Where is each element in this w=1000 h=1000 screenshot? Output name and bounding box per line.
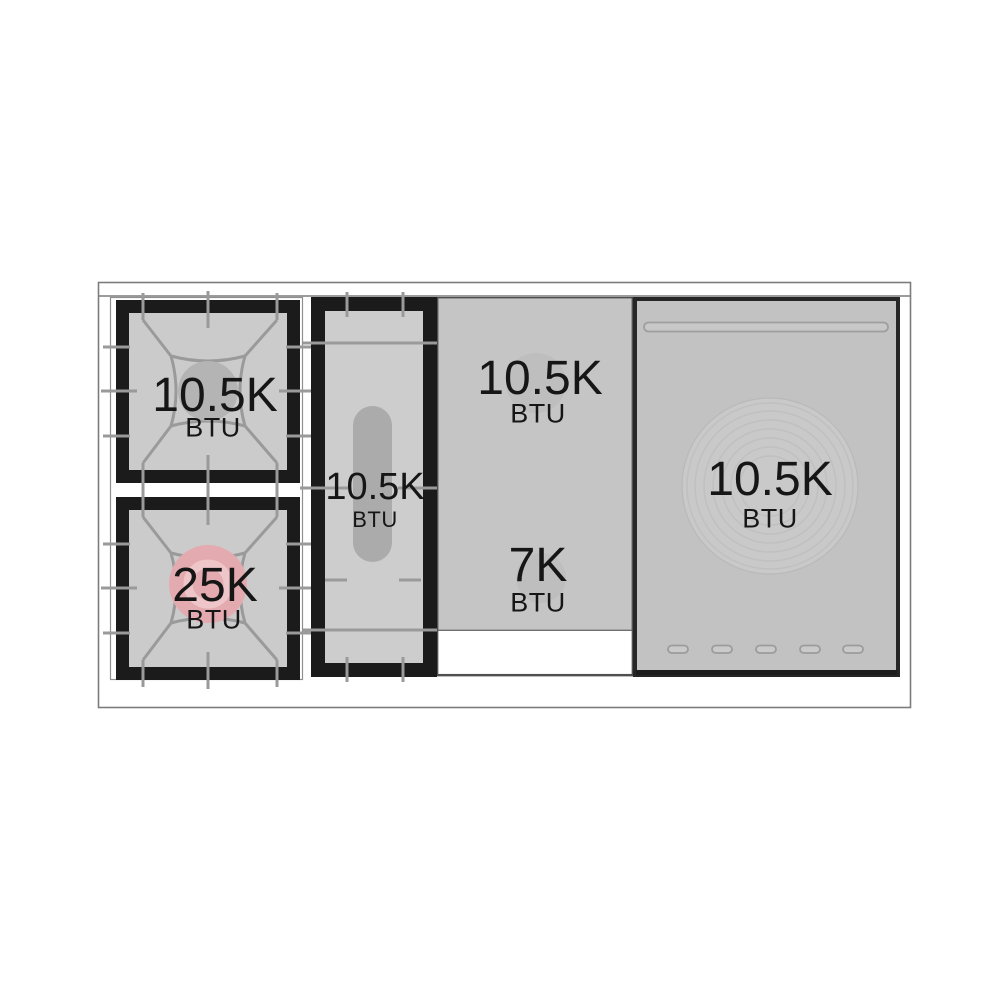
burner-bottom-left-rating: 25K [172,562,257,610]
cooktop-diagram-graphics [0,0,1000,1000]
center-top-burner-unit: BTU [510,401,566,428]
center-panel-front-strip [438,630,631,674]
right-element-unit: BTU [742,506,798,533]
center-bottom-burner-unit: BTU [510,590,566,617]
right-element-rating: 10.5K [707,456,832,504]
burner-bottom-left-unit: BTU [186,607,242,634]
center-bottom-burner-rating: 7K [509,542,568,590]
griddle-burner-rating: 10.5K [325,468,424,506]
griddle-burner-unit: BTU [352,509,398,531]
burner-top-left-unit: BTU [185,415,241,442]
cooktop-spec-diagram: 10.5K BTU 25K BTU 10.5K BTU 10.5K BTU 7K… [0,0,1000,1000]
right-panel-handle-bar [644,323,888,332]
center-top-burner-rating: 10.5K [477,355,602,403]
